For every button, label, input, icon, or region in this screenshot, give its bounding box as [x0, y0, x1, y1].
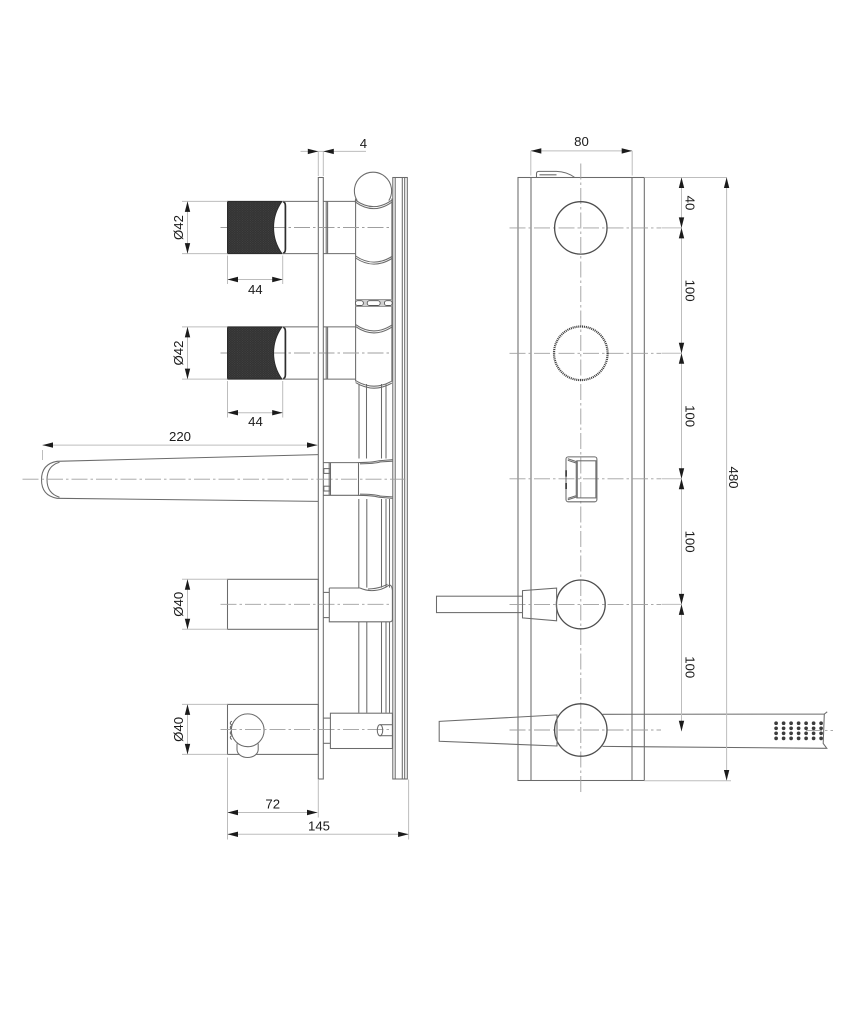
svg-text:Ø40: Ø40	[171, 717, 186, 742]
svg-text:Ø42: Ø42	[171, 341, 186, 366]
svg-text:100: 100	[683, 280, 698, 302]
svg-text:100: 100	[683, 531, 698, 553]
svg-text:4: 4	[360, 136, 367, 151]
svg-text:Ø40: Ø40	[171, 592, 186, 617]
svg-text:145: 145	[308, 819, 330, 834]
svg-text:100: 100	[683, 656, 698, 678]
svg-text:80: 80	[574, 134, 589, 149]
svg-text:100: 100	[683, 405, 698, 427]
svg-text:44: 44	[248, 282, 263, 297]
svg-text:72: 72	[265, 797, 280, 812]
svg-text:40: 40	[683, 196, 698, 211]
svg-text:44: 44	[248, 414, 263, 429]
svg-text:220: 220	[169, 429, 191, 444]
svg-text:Ø42: Ø42	[171, 215, 186, 240]
svg-text:480: 480	[726, 466, 741, 488]
